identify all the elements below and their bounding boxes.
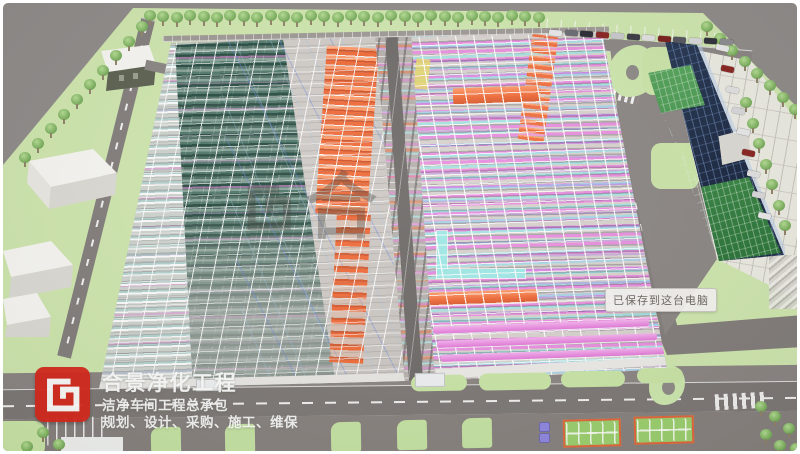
tree — [439, 11, 451, 26]
parked-car — [642, 34, 655, 41]
parked-car — [657, 35, 670, 42]
tree — [790, 443, 800, 454]
tree — [701, 21, 713, 36]
tree — [783, 423, 795, 438]
tree — [211, 12, 223, 27]
watermark: 合 — [241, 165, 431, 251]
parked-car — [595, 32, 608, 39]
parked-car — [736, 128, 750, 137]
parked-car — [752, 191, 766, 200]
tree — [265, 10, 277, 25]
tree — [251, 12, 263, 27]
brand-services: 规划、设计、采购、施工、维保 — [102, 411, 298, 431]
parked-car — [549, 29, 562, 36]
tree — [777, 92, 789, 107]
tree — [760, 159, 772, 174]
tree — [751, 68, 763, 83]
tree — [755, 401, 767, 416]
tree — [492, 12, 504, 27]
tree — [760, 429, 772, 444]
tree — [452, 12, 464, 27]
parked-car — [580, 31, 593, 38]
parked-car — [626, 34, 639, 41]
tree — [144, 10, 156, 25]
tree — [123, 36, 135, 51]
tree — [71, 94, 83, 109]
tree — [773, 200, 785, 215]
tree — [385, 10, 397, 25]
tree — [136, 21, 148, 36]
tree — [53, 439, 65, 454]
tree — [45, 123, 57, 138]
brand-logo-icon — [35, 367, 90, 422]
tree — [412, 12, 424, 27]
tree — [332, 12, 344, 27]
tree — [766, 179, 778, 194]
parked-car — [704, 38, 717, 45]
tree — [466, 10, 478, 25]
parked-car — [688, 37, 701, 44]
tree — [171, 12, 183, 27]
tree — [37, 427, 49, 442]
parked-car — [757, 212, 771, 221]
tree — [318, 11, 330, 26]
tree — [739, 56, 751, 71]
tree — [278, 11, 290, 26]
parked-car — [721, 65, 735, 74]
tree — [769, 411, 781, 426]
tree — [238, 11, 250, 26]
parked-car — [611, 33, 624, 40]
parked-car — [742, 149, 756, 158]
tree — [58, 109, 70, 124]
tree — [97, 65, 109, 80]
parked-car — [726, 86, 740, 95]
tree — [358, 11, 370, 26]
tree — [32, 138, 44, 153]
brand-company-name: 合景净化工程 — [102, 367, 237, 397]
tree — [157, 11, 169, 26]
tree — [21, 441, 33, 454]
tree — [110, 50, 122, 65]
tree — [506, 10, 518, 25]
parked-car — [673, 36, 686, 43]
tree — [184, 10, 196, 25]
parked-car — [716, 44, 730, 53]
tree — [291, 12, 303, 27]
parked-car — [564, 30, 577, 37]
save-toast: 已保存到这台电脑 — [605, 288, 717, 312]
tree — [764, 80, 776, 95]
tree — [19, 152, 31, 167]
scene-canvas: 合 已保存到这台电脑 合景净化工程 洁净车间工程总承包 规划、设计、采购、施工、… — [0, 0, 800, 454]
tree — [372, 12, 384, 27]
render-frame: 合 已保存到这台电脑 合景净化工程 洁净车间工程总承包 规划、设计、采购、施工、… — [0, 0, 800, 454]
tree — [84, 79, 96, 94]
parked-car — [747, 170, 761, 179]
tree — [399, 11, 411, 26]
tree — [779, 220, 791, 235]
tree — [789, 104, 800, 119]
watermark-logo-icon — [241, 180, 297, 236]
tree — [425, 10, 437, 25]
tree — [774, 440, 786, 454]
tree — [198, 11, 210, 26]
tree — [479, 11, 491, 26]
tree — [519, 11, 531, 26]
tree — [305, 10, 317, 25]
tree — [345, 10, 357, 25]
watermark-character: 合 — [305, 165, 377, 251]
parked-car — [731, 107, 745, 116]
tree — [533, 12, 545, 27]
tree — [224, 10, 236, 25]
